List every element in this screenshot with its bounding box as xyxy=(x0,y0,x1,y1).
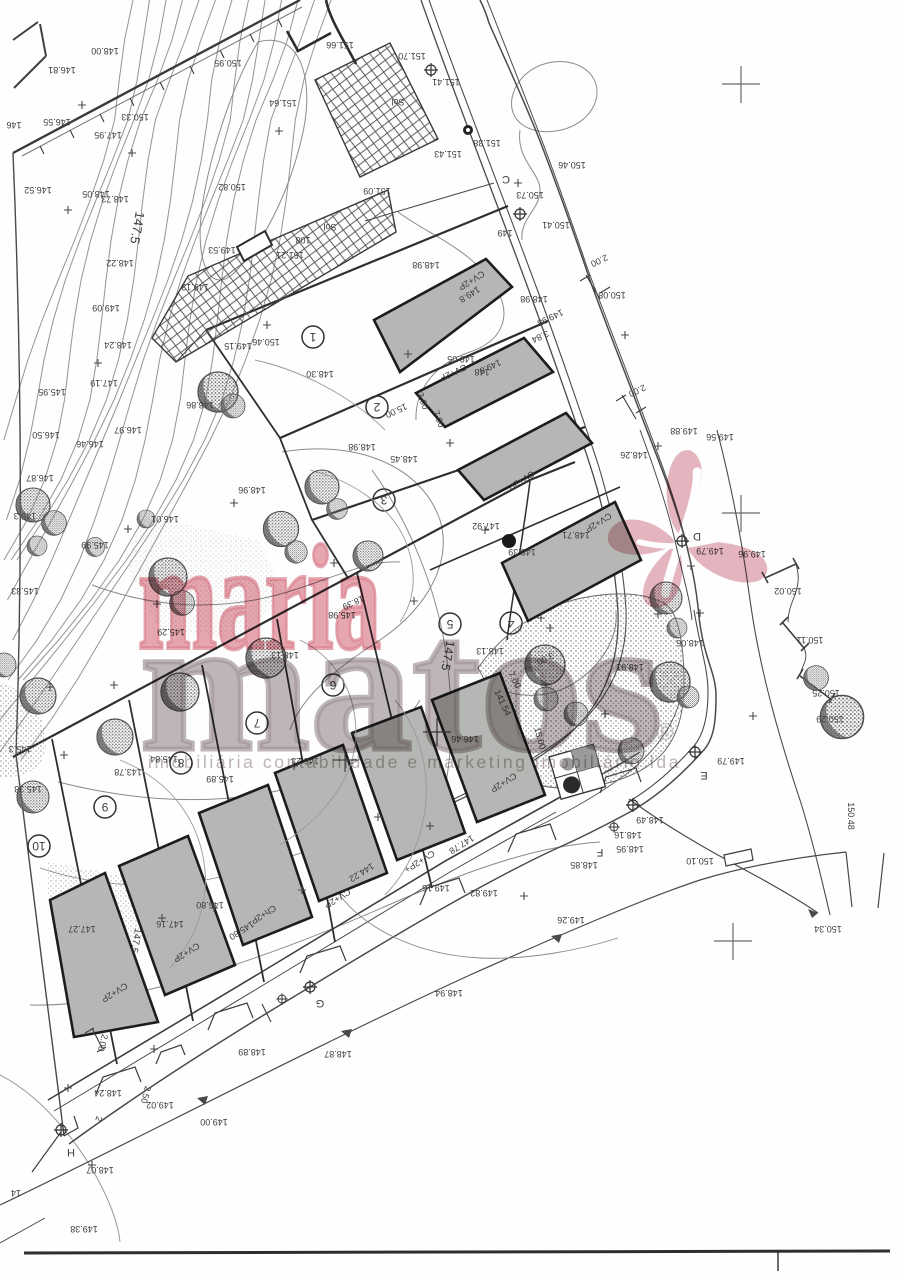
svg-text:146.80: 146.80 xyxy=(196,900,224,910)
svg-text:2: 2 xyxy=(373,400,380,414)
svg-text:148.00: 148.00 xyxy=(91,46,119,56)
svg-text:149.09: 149.09 xyxy=(92,303,120,313)
svg-text:148.30: 148.30 xyxy=(306,369,334,379)
svg-text:®: ® xyxy=(656,719,674,746)
svg-text:148.85: 148.85 xyxy=(570,860,598,870)
svg-text:150.29: 150.29 xyxy=(816,714,844,724)
svg-text:148.22: 148.22 xyxy=(106,258,134,268)
svg-text:149.26: 149.26 xyxy=(557,915,585,925)
svg-text:145.33: 145.33 xyxy=(11,586,39,596)
svg-text:146.87: 146.87 xyxy=(26,473,54,483)
svg-text:150.08: 150.08 xyxy=(598,290,626,300)
svg-text:F: F xyxy=(596,846,603,858)
svg-text:146.50: 146.50 xyxy=(32,430,60,440)
svg-text:151.70: 151.70 xyxy=(398,51,426,61)
svg-text:151.09: 151.09 xyxy=(363,186,391,196)
svg-text:G: G xyxy=(316,997,325,1009)
svg-text:150.25: 150.25 xyxy=(812,688,840,698)
svg-text:150.48: 150.48 xyxy=(846,802,856,830)
svg-text:146.97: 146.97 xyxy=(114,425,142,435)
svg-text:14: 14 xyxy=(11,1188,21,1198)
svg-text:145.3: 145.3 xyxy=(14,511,37,521)
svg-text:146.52: 146.52 xyxy=(24,185,52,195)
svg-text:147.95: 147.95 xyxy=(94,130,122,140)
svg-text:151.66: 151.66 xyxy=(326,40,354,50)
svg-text:147.92: 147.92 xyxy=(472,521,500,531)
svg-text:108: 108 xyxy=(295,235,310,245)
svg-text:148.16: 148.16 xyxy=(614,830,642,840)
svg-text:146.55: 146.55 xyxy=(43,117,71,127)
svg-text:149.16: 149.16 xyxy=(422,883,450,893)
svg-text:148.24: 148.24 xyxy=(94,1088,122,1098)
svg-text:148.24: 148.24 xyxy=(104,340,132,350)
svg-text:148.98: 148.98 xyxy=(412,260,440,270)
svg-text:148.87: 148.87 xyxy=(324,1049,352,1059)
svg-text:149.13: 149.13 xyxy=(181,282,209,292)
svg-text:148.73: 148.73 xyxy=(101,194,129,204)
svg-text:150.41: 150.41 xyxy=(542,220,570,230)
svg-text:148.98: 148.98 xyxy=(348,442,376,452)
svg-text:149.00: 149.00 xyxy=(200,1117,228,1127)
svg-text:148.39: 148.39 xyxy=(508,547,536,557)
svg-text:149.88: 149.88 xyxy=(670,426,698,436)
svg-text:148.95: 148.95 xyxy=(616,844,644,854)
svg-text:148.45: 148.45 xyxy=(390,454,418,464)
svg-text:150.95: 150.95 xyxy=(214,58,242,68)
svg-text:151.38: 151.38 xyxy=(473,138,501,148)
svg-text:150.82: 150.82 xyxy=(218,182,246,192)
svg-text:145.38: 145.38 xyxy=(14,784,42,794)
svg-text:149.79: 149.79 xyxy=(717,756,745,766)
svg-text:149.56: 149.56 xyxy=(706,432,734,442)
svg-text:Sol: Sol xyxy=(391,97,404,107)
svg-text:150.46: 150.46 xyxy=(558,160,586,170)
svg-text:145.3: 145.3 xyxy=(9,744,32,754)
svg-text:151.64: 151.64 xyxy=(269,98,297,108)
svg-text:147.16: 147.16 xyxy=(156,919,184,929)
svg-text:148.07: 148.07 xyxy=(86,1165,114,1175)
svg-text:148.49: 148.49 xyxy=(636,815,664,825)
svg-text:150.33: 150.33 xyxy=(121,112,149,122)
svg-text:148.94: 148.94 xyxy=(435,988,463,998)
svg-text:148.26: 148.26 xyxy=(620,450,648,460)
svg-text:149.15: 149.15 xyxy=(224,341,252,351)
svg-text:Sol: Sol xyxy=(323,222,336,232)
svg-text:C: C xyxy=(502,173,510,185)
svg-text:149.53: 149.53 xyxy=(208,245,236,255)
svg-text:145.99: 145.99 xyxy=(81,540,109,550)
svg-text:10: 10 xyxy=(32,839,46,853)
svg-text:148.86: 148.86 xyxy=(186,400,214,410)
svg-text:149.05: 149.05 xyxy=(447,354,475,364)
svg-text:148.71: 148.71 xyxy=(562,530,590,540)
svg-text:E: E xyxy=(700,769,707,781)
svg-text:1: 1 xyxy=(309,330,316,344)
svg-text:149: 149 xyxy=(497,228,512,238)
svg-text:148.89: 148.89 xyxy=(238,1047,266,1057)
svg-text:9: 9 xyxy=(101,800,108,814)
svg-text:146.46: 146.46 xyxy=(76,439,104,449)
svg-text:146.81: 146.81 xyxy=(48,65,76,75)
svg-text:148.98: 148.98 xyxy=(520,294,548,304)
svg-text:D: D xyxy=(693,530,701,542)
svg-text:149.82: 149.82 xyxy=(470,888,498,898)
svg-text:148.06: 148.06 xyxy=(676,638,704,648)
svg-text:151.43: 151.43 xyxy=(434,149,462,159)
svg-text:145.95: 145.95 xyxy=(38,387,66,397)
svg-text:150.34: 150.34 xyxy=(814,924,842,934)
svg-text:151.21: 151.21 xyxy=(276,250,304,260)
svg-text:150.46: 150.46 xyxy=(252,337,280,347)
svg-text:150.11: 150.11 xyxy=(797,635,824,645)
svg-text:149.02: 149.02 xyxy=(146,1100,174,1110)
svg-text:150.73: 150.73 xyxy=(516,190,544,200)
svg-text:147.19: 147.19 xyxy=(90,378,118,388)
svg-text:H: H xyxy=(67,1146,75,1158)
svg-text:151.41: 151.41 xyxy=(432,77,460,87)
svg-text:150.02: 150.02 xyxy=(774,586,802,596)
svg-text:146: 146 xyxy=(6,120,21,130)
svg-text:148.96: 148.96 xyxy=(238,485,266,495)
svg-text:143.78: 143.78 xyxy=(114,767,142,777)
svg-text:147.27: 147.27 xyxy=(68,924,96,934)
svg-text:150.10: 150.10 xyxy=(686,856,714,866)
svg-text:3: 3 xyxy=(380,493,387,507)
svg-text:imobiliária contabilidade e: imobiliária contabilidade e marketing im… xyxy=(148,752,680,772)
svg-text:149.38: 149.38 xyxy=(70,1224,98,1234)
